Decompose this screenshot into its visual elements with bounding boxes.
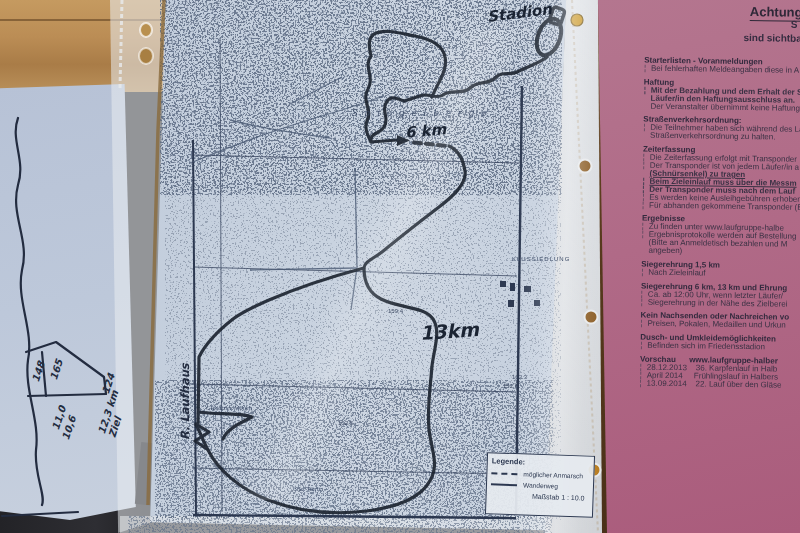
bullet-icon: ¦ (642, 201, 649, 209)
info-line: Der Veranstalter übernimmt keine Haftung… (643, 102, 800, 113)
info-visible-line: sind sichtbar (743, 32, 800, 44)
info-text-column: Starterlisten - Voranmeldungen¦Bei fehle… (640, 57, 800, 390)
info-line: ¦Siegerehrung in der Nähe des Zielberei (641, 298, 800, 309)
info-line: ¦13.09.2014 22. Lauf über den Gläse (640, 379, 800, 390)
bullet-icon: ¦ (640, 379, 647, 387)
bullet-icon: ¦ (640, 320, 647, 328)
info-line-fragment: S (791, 19, 798, 30)
bullet-icon: ¦ (641, 268, 648, 276)
bullet-icon: ¦ (640, 342, 647, 350)
bullet-icon: ¦ (644, 65, 651, 73)
info-line: ¦Für abhanden gekommene Transponder (B (642, 201, 800, 212)
photo-of-race-noticeboard: Laufgruppe Halberstadt Stadion 6 km 13km… (0, 0, 800, 533)
pink-sheet-content: Achtung S sind sichtbar Starterlisten - … (0, 0, 800, 533)
bullet-icon: ¦ (641, 298, 648, 306)
info-line: ¦Nach Zieleinlauf (641, 268, 800, 279)
info-line: ¦Preisen, Pokalen, Medaillen und Urkun (640, 320, 800, 331)
info-line: ¦Bei fehlerhaften Meldeangaben diese in … (644, 65, 800, 76)
